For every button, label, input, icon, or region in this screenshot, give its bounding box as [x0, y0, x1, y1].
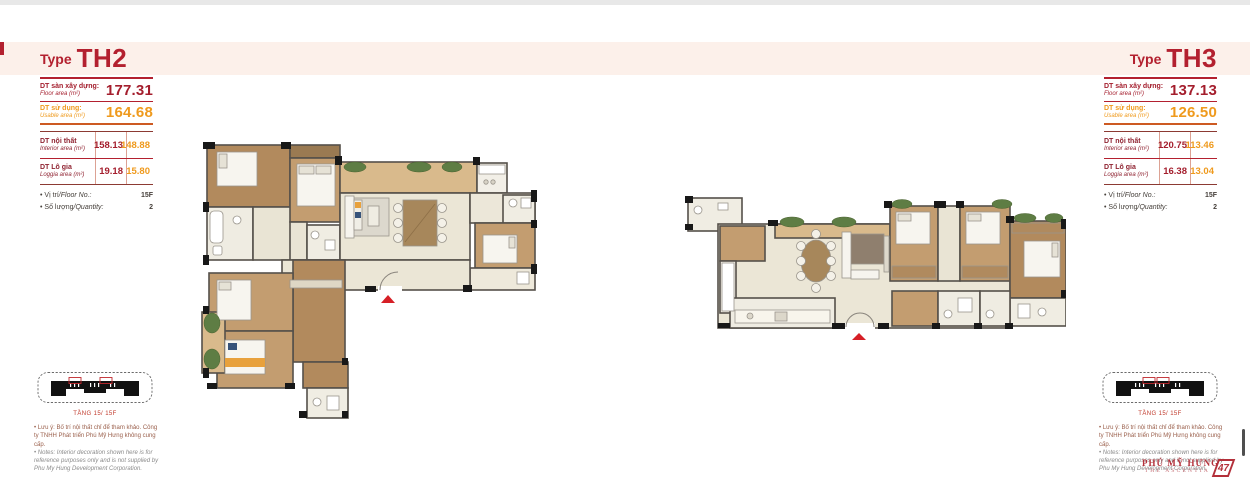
- loggia-area-row: DT Lô gia Loggia area (m²) 19.18 15.80: [40, 158, 153, 184]
- usable-area-label: DT sử dụng: Usable area (m²): [40, 105, 85, 120]
- quantity-row: • Số lượng/Quantity: 2: [1104, 202, 1217, 214]
- interior-area-row: DT nội thất Interior area (m²) 158.13 14…: [40, 132, 153, 158]
- disclaimer-en: • Notes: Interior decoration shown here …: [34, 449, 160, 474]
- loggia-area-label: DT Lô gia Loggia area (m²): [40, 159, 95, 184]
- usable-area-label: DT sử dụng: Usable area (m²): [1104, 105, 1149, 120]
- interior-area-row: DT nội thất Interior area (m²) 120.75 11…: [1104, 132, 1217, 158]
- page-number: 47: [1218, 463, 1229, 474]
- floor-no-row: • Vị trí/Floor No.: 15F: [1104, 190, 1217, 202]
- floor-no-row: • Vị trí/Floor No.: 15F: [40, 190, 153, 202]
- brand-name: PHÚ MỸ HƯNG: [1142, 458, 1210, 468]
- project-name: THE ASCENTIA: [1142, 468, 1210, 474]
- floor-area-row: DT sàn xây dựng: Floor area (m²) 137.13: [1104, 79, 1217, 101]
- type-prefix: Type: [40, 51, 72, 67]
- unit-info: • Vị trí/Floor No.: 15F • Số lượng/Quant…: [40, 190, 153, 214]
- type-name: TH3: [1166, 43, 1217, 74]
- top-gray-bar: [0, 0, 1250, 5]
- area-table-main: DT sàn xây dựng: Floor area (m²) 177.31 …: [40, 77, 153, 125]
- usable-area-value: 126.50: [1170, 104, 1217, 121]
- interior-area-value-2: 113.46: [1190, 132, 1217, 158]
- floorplan-th3: [680, 186, 1066, 346]
- loggia-area-value-2: 15.80: [126, 159, 153, 184]
- usable-area-value: 164.68: [106, 104, 153, 121]
- loggia-area-label-en: Loggia area (m²): [1104, 172, 1159, 179]
- brand-logo: PHÚ MỸ HƯNG THE ASCENTIA: [1142, 458, 1210, 474]
- interior-area-label-en: Interior area (m²): [1104, 146, 1159, 153]
- loggia-area-value-2: 13.04: [1190, 159, 1217, 184]
- interior-area-label: DT nội thất Interior area (m²): [40, 132, 95, 158]
- usable-area-row: DT sử dụng: Usable area (m²) 164.68: [40, 101, 153, 123]
- usable-area-label-en: Usable area (m²): [1104, 113, 1149, 120]
- disclaimer-th2: • Lưu ý: Bố trí nội thất chỉ để tham khả…: [34, 424, 160, 474]
- entrance-arrow-icon: [381, 295, 395, 303]
- floor-no-label: • Vị trí/Floor No.:: [1104, 190, 1155, 202]
- floor-area-label: DT sàn xây dựng: Floor area (m²): [40, 83, 99, 98]
- quantity-row: • Số lượng/Quantity: 2: [40, 202, 153, 214]
- keyplan-caption: TẦNG 15/ 15F: [36, 411, 154, 417]
- spec-panel-th2: DT sàn xây dựng: Floor area (m²) 177.31 …: [40, 77, 153, 214]
- disclaimer-vi: • Lưu ý: Bố trí nội thất chỉ để tham khả…: [34, 424, 160, 449]
- interior-area-label-vi: DT nội thất: [40, 138, 95, 146]
- interior-area-value-2: 148.88: [126, 132, 153, 158]
- interior-area-label: DT nội thất Interior area (m²): [1104, 132, 1159, 158]
- quantity-value: 2: [1213, 202, 1217, 214]
- loggia-area-label: DT Lô gia Loggia area (m²): [1104, 159, 1159, 184]
- area-table-detail: DT nội thất Interior area (m²) 158.13 14…: [40, 131, 153, 185]
- entrance-arrow-icon: [852, 333, 866, 340]
- floor-area-label-vi: DT sàn xây dựng:: [1104, 83, 1163, 91]
- interior-area-label-vi: DT nội thất: [1104, 138, 1159, 146]
- usable-area-row: DT sử dụng: Usable area (m²) 126.50: [1104, 101, 1217, 123]
- area-table-main: DT sàn xây dựng: Floor area (m²) 137.13 …: [1104, 77, 1217, 125]
- floor-area-value: 137.13: [1170, 82, 1217, 99]
- usable-area-label-vi: DT sử dụng:: [1104, 105, 1149, 113]
- floorplan-th2: [195, 140, 545, 420]
- floor-area-row: DT sàn xây dựng: Floor area (m²) 177.31: [40, 79, 153, 101]
- interior-area-label-en: Interior area (m²): [40, 146, 95, 153]
- usable-area-label-en: Usable area (m²): [40, 113, 85, 120]
- band-left-accent: [0, 42, 4, 55]
- floor-no-value: 15F: [1205, 190, 1217, 202]
- loggia-area-label-en: Loggia area (m²): [40, 172, 95, 179]
- loggia-area-label-vi: DT Lô gia: [40, 164, 95, 172]
- loggia-area-value-1: 16.38: [1159, 159, 1190, 184]
- quantity-label: • Số lượng/Quantity:: [40, 202, 104, 214]
- area-table-detail: DT nội thất Interior area (m²) 120.75 11…: [1104, 131, 1217, 185]
- header-band: [0, 42, 1250, 75]
- loggia-area-value-1: 19.18: [95, 159, 126, 184]
- floor-area-label-en: Floor area (m²): [1104, 91, 1163, 98]
- type-title-th2: Type TH2: [40, 42, 127, 75]
- brochure-page: Type TH2 Type TH3 DT sàn xây dựng: Floor…: [0, 0, 1250, 490]
- loggia-area-label-vi: DT Lô gia: [1104, 164, 1159, 172]
- disclaimer-vi: • Lưu ý: Bố trí nội thất chỉ để tham khả…: [1099, 424, 1225, 449]
- usable-area-label-vi: DT sử dụng:: [40, 105, 85, 113]
- floor-no-value: 15F: [141, 190, 153, 202]
- floor-area-value: 177.31: [106, 82, 153, 99]
- keyplan-th3: TẦNG 15/ 15F: [1101, 371, 1219, 417]
- keyplan-th2: TẦNG 15/ 15F: [36, 371, 154, 417]
- floor-area-label-vi: DT sàn xây dựng:: [40, 83, 99, 91]
- type-prefix: Type: [1130, 51, 1162, 67]
- keyplan-caption: TẦNG 15/ 15F: [1101, 411, 1219, 417]
- type-title-th3: Type TH3: [1130, 42, 1217, 75]
- floor-area-label-en: Floor area (m²): [40, 91, 99, 98]
- quantity-label: • Số lượng/Quantity:: [1104, 202, 1168, 214]
- type-name: TH2: [77, 43, 128, 74]
- unit-info: • Vị trí/Floor No.: 15F • Số lượng/Quant…: [1104, 190, 1217, 214]
- scrollbar-thumb[interactable]: [1242, 429, 1245, 456]
- floor-area-label: DT sàn xây dựng: Floor area (m²): [1104, 83, 1163, 98]
- quantity-value: 2: [149, 202, 153, 214]
- floor-no-label: • Vị trí/Floor No.:: [40, 190, 91, 202]
- spec-panel-th3: DT sàn xây dựng: Floor area (m²) 137.13 …: [1104, 77, 1217, 214]
- loggia-area-row: DT Lô gia Loggia area (m²) 16.38 13.04: [1104, 158, 1217, 184]
